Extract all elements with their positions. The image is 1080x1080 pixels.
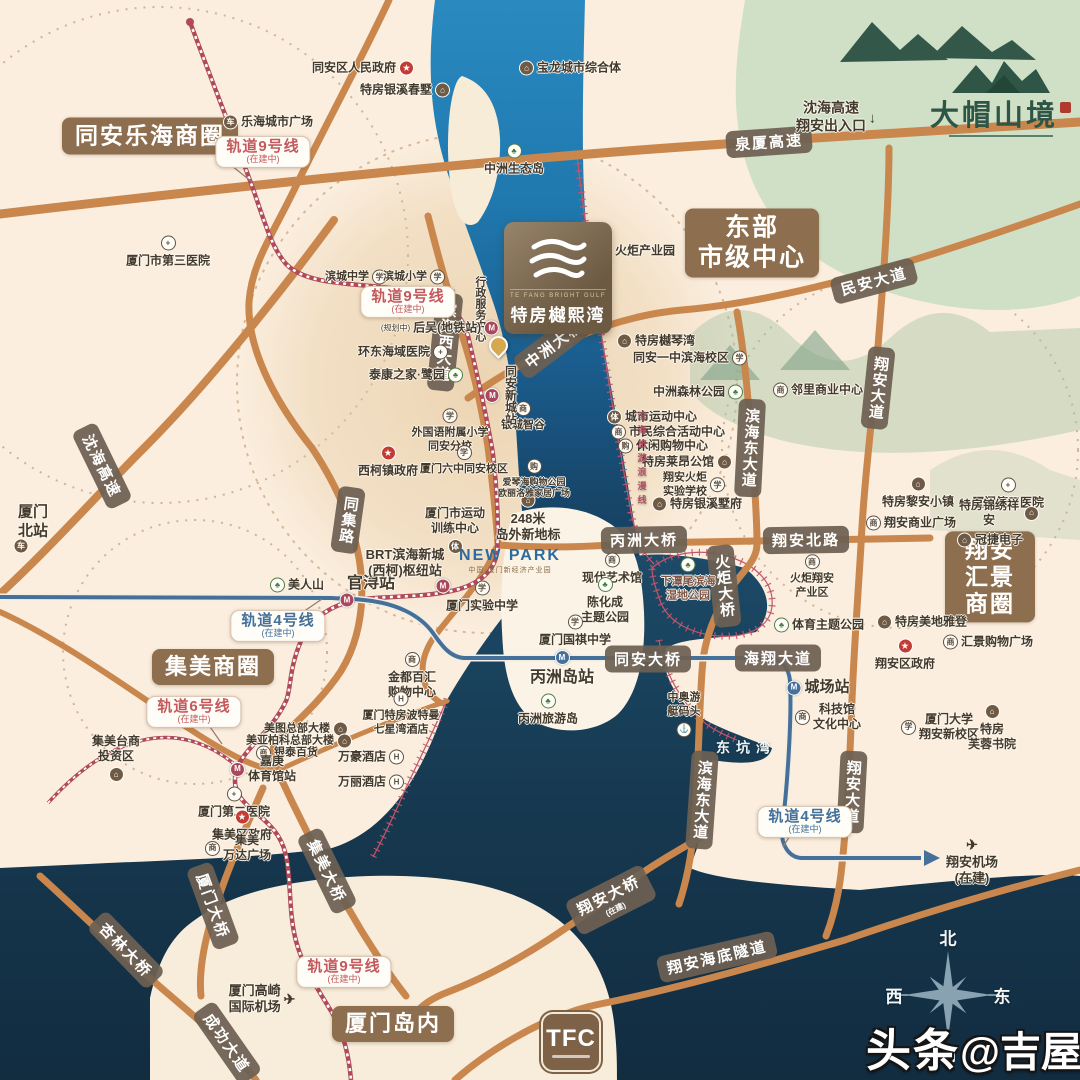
poi: 滨海旅游浪漫线 [635, 411, 646, 509]
poi-label: 特房锦绣祥安 [957, 498, 1021, 528]
poi-label: 东坑湾 [716, 739, 776, 757]
poi-label: 泰康之家·鹭园 [369, 368, 445, 383]
poi-label: 滨海旅游浪漫线 [635, 411, 646, 509]
poi: ⌂特房 芙蓉书院 [968, 704, 1016, 752]
poi: M城场站 [786, 679, 849, 698]
poi: ★西柯镇政府 [358, 446, 418, 479]
poi-label: 中奥游 艇码头 [668, 691, 701, 719]
poi-label: 后吴(地铁站) [413, 321, 481, 336]
rail-line-bubble: 轨道4号线(在建中) [757, 806, 852, 838]
m9-icon: M [340, 593, 355, 608]
bld-icon: ⌂ [717, 455, 732, 470]
compass-east: 东 [994, 983, 1011, 1008]
poi-label: 翔安区政府 [875, 657, 935, 672]
poi-label: 冠捷电子 [975, 533, 1023, 548]
rail-line-bubble: 轨道6号线(在建中) [146, 696, 241, 728]
poi: ⌂冠捷电子 [957, 533, 1023, 548]
poi: 商科技馆 文化中心 [795, 702, 861, 732]
poi: 商市民综合活动中心 [611, 425, 725, 440]
poi: 东坑湾 [716, 739, 776, 757]
school-icon: 学 [457, 445, 472, 460]
poi: 商汇景购物广场 [943, 635, 1033, 650]
mall-icon: 商 [611, 425, 626, 440]
poi-label: 科技馆 文化中心 [813, 702, 861, 732]
school-icon: 学 [710, 478, 725, 493]
rail-line-name: 轨道4号线 [768, 809, 841, 825]
seal-icon [1060, 102, 1071, 113]
district-badge: 同安乐海商圈 [62, 117, 238, 154]
watermark-rest: @吉屋网 [960, 1029, 1080, 1075]
project-logo-name: 特房樾熙湾 [511, 301, 606, 326]
poi: 车 [14, 539, 29, 554]
road-label: 丙洲大桥 [601, 526, 687, 554]
rail-line-status: (在建中) [371, 305, 444, 314]
m4-icon: M [554, 650, 569, 665]
rail-line-bubble: 轨道9号线(在建中) [360, 286, 455, 318]
mall-icon: 商 [604, 553, 619, 568]
bld-icon: ⌂ [337, 734, 352, 749]
rail-line-name: 轨道6号线 [157, 699, 230, 715]
compass-north: 北 [940, 925, 957, 950]
mall-icon: 商 [516, 401, 531, 416]
poi: 商集美 万达广场 [205, 833, 271, 863]
rail-line-bubble: 轨道9号线(在建中) [215, 136, 310, 168]
bld-icon: ⌂ [877, 615, 892, 630]
poi: 学滨城中学 [325, 270, 387, 285]
poi: 学同安一中滨海校区 [633, 351, 747, 366]
m9-icon: M [485, 388, 500, 403]
plane-icon: ✈ [966, 837, 978, 851]
poi: ♣中洲生态岛 [484, 144, 544, 177]
road-label: 翔安北路 [763, 526, 849, 554]
poi: M [340, 593, 355, 608]
poi-label: 厦门六中同安校区 [420, 463, 508, 477]
poi: ♣美人山 [270, 578, 324, 593]
poi-label: 城场站 [804, 679, 849, 698]
poi: ★同安区人民政府 [312, 61, 414, 76]
poi: ⌂集美台商 投资区 [92, 734, 140, 782]
poi: ⌂特房美地雅登 [877, 615, 967, 630]
poi: 学滨城小学 [383, 270, 445, 285]
rail-line-status: (在建中) [226, 155, 299, 164]
poi-label: 中洲生态岛 [484, 162, 544, 177]
m9-icon: M [230, 762, 245, 777]
poi-label: 滨城小学 [383, 270, 427, 284]
rail-line-name: 轨道9号线 [371, 289, 444, 305]
district-badge: 厦门岛内 [332, 1006, 454, 1042]
mall-icon: 商 [943, 635, 958, 650]
road-label: 滨海东大道 [734, 398, 766, 497]
rail-line-status: (在建中) [241, 629, 314, 638]
poi-label: 西柯镇政府 [358, 464, 418, 479]
poi: ⌂宝龙城市综合体 [519, 61, 621, 76]
cart-icon: 购 [618, 439, 633, 454]
poi-label: 万豪酒店 [338, 750, 386, 765]
bld-icon: ⌂ [957, 533, 972, 548]
school-icon: 学 [901, 720, 916, 735]
poi: ⌂248米 岛外新地标 [495, 493, 560, 544]
rail-line-name: 轨道9号线 [226, 139, 299, 155]
poi-label: 火炬产业园 [615, 244, 675, 259]
poi: ♣中洲森林公园 [653, 385, 743, 400]
hotel-icon: H [389, 750, 404, 765]
gov-icon: ★ [380, 446, 395, 461]
hosp-icon: + [1001, 478, 1016, 493]
anchor-icon: ⚓ [677, 722, 692, 737]
m9-icon: M [484, 321, 499, 336]
rail-line-name: 轨道9号线 [307, 959, 380, 975]
train-icon: 车 [14, 539, 29, 554]
poi: 学厦门国祺中学 [539, 615, 611, 648]
poi-label: 厦门国祺中学 [539, 633, 611, 648]
newpark-label: NEW PARK 中国·厦门新经济产业园 [459, 547, 561, 575]
poi-label: 爱琴海购物公园 欧丽洛雅家居广场 [498, 477, 570, 500]
poi-label: 特房美地雅登 [895, 615, 967, 630]
train-icon: 车 [223, 115, 238, 130]
damaoshan-name: 大帽山境 [930, 100, 1058, 132]
hosp-icon: + [433, 345, 448, 360]
school-icon: 学 [732, 351, 747, 366]
poi: ⌂特房银溪春墅 [360, 83, 450, 98]
poi: M后吴(地铁站)(规划中) [381, 321, 499, 336]
poi-label: 集美 万达广场 [223, 833, 271, 863]
poi: ⌂特房锦绣祥安 [957, 498, 1039, 528]
mall-icon: 商 [805, 554, 820, 569]
school-icon: 学 [443, 408, 458, 423]
mall-icon: 商 [795, 710, 810, 725]
poi-label: 同安区人民政府 [312, 61, 396, 76]
poi-label: 乐海城市广场 [241, 115, 313, 130]
poi: ⚓中奥游 艇码头 [668, 691, 701, 737]
poi-label: 美人山 [288, 578, 324, 593]
location-map: TE FANG BRIGHT GULF 特房樾熙湾 NEW PARK 中国·厦门… [0, 0, 1080, 1080]
tree-icon: ♣ [540, 694, 555, 709]
poi: 学厦门实验中学 [446, 581, 518, 614]
poi: 商火炬翔安 产业区 [790, 554, 834, 600]
poi: +环东海域医院 [358, 345, 448, 360]
bld-icon: ⌂ [1024, 506, 1039, 521]
damaoshan-underline [949, 135, 1053, 137]
poi: ⌂特房银溪墅府 [652, 497, 742, 512]
hotel-icon: H [394, 691, 409, 706]
newpark-title: NEW PARK [459, 547, 561, 565]
poi-label: 特房银溪春墅 [360, 83, 432, 98]
newpark-subtitle: 中国·厦门新经济产业园 [459, 565, 561, 575]
poi-label: 体育主题公园 [792, 618, 864, 633]
mall-icon: 商 [404, 652, 419, 667]
poi: ♣泰康之家·鹭园 [369, 368, 463, 383]
tree-icon: ♣ [681, 557, 696, 572]
poi-label: 厦门市第三医院 [126, 254, 210, 269]
plane-icon: ✈ [284, 992, 296, 1006]
gov-icon: ★ [399, 61, 414, 76]
poi: H万丽酒店 [338, 775, 404, 790]
project-logo-en: TE FANG BRIGHT GULF [510, 289, 606, 299]
poi: M丙洲岛站 [530, 650, 594, 688]
poi: ✈翔安机场 (在建) [946, 837, 998, 887]
tree-icon: ♣ [506, 144, 521, 159]
poi: 购休闲购物中心 [618, 439, 708, 454]
poi-label: 中洲森林公园 [653, 385, 725, 400]
poi-label: 邻里商业中心 [791, 383, 863, 398]
poi-label: 丙洲岛站 [530, 668, 594, 688]
compass-west: 西 [886, 983, 903, 1008]
rail-line-status: (在建中) [768, 825, 841, 834]
poi-label: 厦门实验中学 [446, 599, 518, 614]
gov-icon: ★ [234, 810, 249, 825]
poi: 体城市运动中心 [607, 410, 697, 425]
tree-icon: ♣ [448, 368, 463, 383]
rail-line-status: (在建中) [157, 715, 230, 724]
poi-label: 厦门高崎 国际机场 [229, 983, 281, 1016]
poi-label: 特房黎安小镇 [882, 495, 954, 510]
poi-label: 厦门 北站 [18, 503, 48, 541]
poi-label: 同安新城站 [503, 365, 518, 425]
poi-label: 同安一中滨海校区 [633, 351, 729, 366]
poi: ⌂特房莱昂公馆 [642, 455, 732, 470]
school-icon: 学 [430, 270, 445, 285]
poi-label: 翔安商业广场 [884, 516, 956, 531]
poi-label: 特房莱昂公馆 [642, 455, 714, 470]
poi: H万豪酒店 [338, 750, 404, 765]
poi: 车乐海城市广场 [223, 115, 313, 130]
bld-icon: ⌂ [519, 61, 534, 76]
poi-label: 翔安火炬 实验学校 [663, 471, 707, 499]
rail-line-name: 轨道4号线 [241, 613, 314, 629]
bld-icon: ⌂ [617, 334, 632, 349]
hosp-icon: + [226, 787, 241, 802]
sport-icon: 体 [607, 410, 622, 425]
poi: 商翔安商业广场 [866, 516, 956, 531]
poi-label: 宝龙城市综合体 [537, 61, 621, 76]
poi: H厦门特房波特曼 七星湾酒店 [363, 691, 440, 737]
poi: ⌂特房黎安小镇 [882, 477, 954, 510]
poi-label: 厦门特房波特曼 七星湾酒店 [363, 709, 440, 737]
poi: ✈厦门高崎 国际机场 [229, 983, 296, 1016]
bld-icon: ⌂ [435, 83, 450, 98]
tree-icon: ♣ [597, 577, 612, 592]
poi-label: 滨城中学 [325, 270, 369, 284]
poi-label: 嘉庚 体育馆站 [248, 754, 296, 784]
poi: ↓沈海高速 翔安出入口 [796, 100, 876, 135]
poi-label: 沈海高速 翔安出入口 [796, 100, 866, 135]
district-badge: 集美商圈 [152, 649, 274, 685]
poi: 购爱琴海购物公园 欧丽洛雅家居广场 [498, 459, 570, 500]
poi: M嘉庚 体育馆站 [230, 754, 296, 784]
hosp-icon: + [160, 236, 175, 251]
project-logo: TE FANG BRIGHT GULF 特房樾熙湾 [504, 222, 612, 334]
tfc-logo: TFC [541, 1012, 601, 1072]
district-badge: 东部 市级中心 [685, 209, 819, 278]
poi: ♣下潭尾滨海 湿地公园 [661, 557, 716, 603]
poi-label: 厦门市运动 训练中心 [425, 506, 485, 536]
poi-label: 汇景购物广场 [961, 635, 1033, 650]
poi-label: 万丽酒店 [338, 775, 386, 790]
watermark-bold: 头条 [866, 1025, 960, 1076]
mall-icon: 商 [866, 516, 881, 531]
watermark: 头条@吉屋网 [866, 1014, 1080, 1079]
bld-icon: ⌂ [910, 477, 925, 492]
bld-icon: ⌂ [984, 704, 999, 719]
gov-icon: ★ [897, 639, 912, 654]
poi-label: 特房樾琴湾 [635, 334, 695, 349]
rail-line-bubble: 轨道4号线(在建中) [230, 610, 325, 642]
poi-label: 丙洲旅游岛 [518, 712, 578, 727]
poi-label: 248米 岛外新地标 [495, 511, 560, 544]
tree-icon: ♣ [774, 618, 789, 633]
poi: 商邻里商业中心 [773, 383, 863, 398]
poi: ♣体育主题公园 [774, 618, 864, 633]
damaoshan-logo: 大帽山境 [930, 55, 1071, 137]
cart-icon: 购 [526, 459, 541, 474]
poi-label: 特房银溪墅府 [670, 497, 742, 512]
poi-label: 下潭尾滨海 湿地公园 [661, 575, 716, 603]
rail-line-status: (在建中) [307, 975, 380, 984]
poi: +厦门市第三医院 [126, 236, 210, 269]
road-label: 同安大桥 [605, 646, 691, 673]
tfc-title: TFC [546, 1027, 596, 1051]
poi-label: 环东海域医院 [358, 345, 430, 360]
mountain-icon [946, 55, 1056, 97]
bld-icon: ⌂ [652, 497, 667, 512]
wave-icon [526, 235, 590, 287]
poi: 学翔安火炬 实验学校 [663, 471, 725, 499]
poi: 学厦门六中同安校区 [420, 445, 508, 477]
road-label: 海翔大道 [735, 645, 821, 672]
rail-line-bubble: 轨道9号线(在建中) [296, 956, 391, 988]
poi: ♣丙洲旅游岛 [518, 694, 578, 727]
poi-label: 翔安机场 (在建) [946, 854, 998, 887]
poi-label: 集美台商 投资区 [92, 734, 140, 764]
school-icon: 学 [567, 615, 582, 630]
poi-label: 休闲购物中心 [636, 439, 708, 454]
tree-icon: ♣ [728, 385, 743, 400]
m4-icon: M [786, 681, 801, 696]
mall-icon: 商 [773, 383, 788, 398]
hotel-icon: H [389, 775, 404, 790]
school-icon: 学 [474, 581, 489, 596]
poi: ⌂特房樾琴湾 [617, 334, 695, 349]
poi: ★翔安区政府 [875, 639, 935, 672]
poi-label: 特房 芙蓉书院 [968, 722, 1016, 752]
down-icon: ↓ [869, 110, 876, 124]
mall-icon: 商 [205, 841, 220, 856]
tfc-caption-line [552, 1055, 590, 1058]
poi-label: 火炬翔安 产业区 [790, 572, 834, 600]
poi-note: (规划中) [381, 323, 410, 333]
poi: M同安新城站 [485, 365, 518, 425]
bld-icon: ⌂ [108, 767, 123, 782]
tree-icon: ♣ [270, 578, 285, 593]
poi: 厦门 北站 [18, 503, 48, 541]
